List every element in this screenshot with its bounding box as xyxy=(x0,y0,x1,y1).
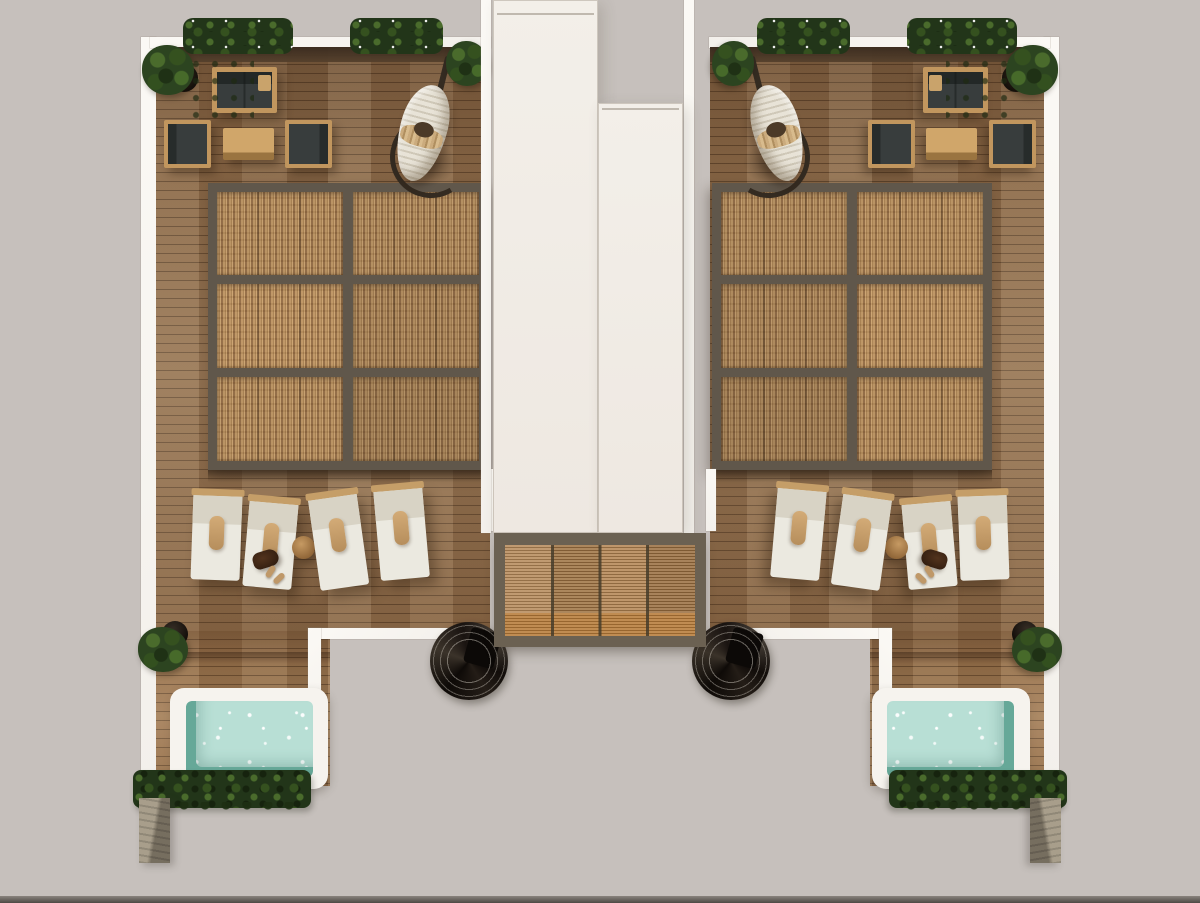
fallen-leaves xyxy=(946,58,1012,120)
plant-foliage xyxy=(1006,45,1058,95)
planter-plants xyxy=(757,18,850,54)
pergola-slat-panel xyxy=(857,192,983,275)
sofa-blanket xyxy=(929,75,942,91)
sun-lounger xyxy=(901,498,957,590)
entry-canopy xyxy=(494,533,706,647)
planter-plants xyxy=(907,18,1017,54)
image-bottom-edge xyxy=(0,896,1200,903)
slab-parapet-line xyxy=(602,108,679,110)
side-table xyxy=(885,536,908,559)
pergola-slat-panel xyxy=(857,284,983,368)
armchair-cushion xyxy=(872,124,911,164)
pergola-slat-panel xyxy=(721,192,847,275)
pool-water xyxy=(887,701,1014,777)
plant-foliage xyxy=(712,41,754,86)
center-wall-stub xyxy=(706,469,716,531)
lounger-pillow xyxy=(853,518,873,554)
armchair-cushion xyxy=(993,124,1032,164)
lounger-pillow xyxy=(976,515,992,550)
slab-parapet-line xyxy=(497,13,594,15)
planter-box xyxy=(762,24,845,50)
central-roof-slab-upper xyxy=(493,0,598,533)
central-roof-slab-lower xyxy=(598,103,683,533)
pergola-slat-panel xyxy=(721,377,847,461)
armchair xyxy=(989,120,1036,168)
canopy-slats xyxy=(505,545,695,613)
pergola-slat-panel xyxy=(721,284,847,368)
armchair xyxy=(868,120,915,168)
central-wall-left xyxy=(481,0,491,533)
pergola-drop-shadow xyxy=(712,470,992,482)
sun-lounger xyxy=(770,485,827,581)
sandal xyxy=(914,572,928,585)
stone-pillar xyxy=(1030,798,1061,863)
canopy-landing-deck xyxy=(505,613,695,636)
pergola-slat-panel xyxy=(857,377,983,461)
plant-foliage xyxy=(1012,627,1062,672)
planter-box xyxy=(912,24,1012,50)
sun-lounger xyxy=(957,492,1009,581)
lounger-pillow xyxy=(790,510,808,545)
coffee-table xyxy=(926,128,977,160)
central-wall-right xyxy=(684,0,694,533)
pergola-roof xyxy=(712,183,992,470)
outer-side-wall xyxy=(1044,37,1059,783)
rooftop-terrace-plan xyxy=(0,0,1200,903)
